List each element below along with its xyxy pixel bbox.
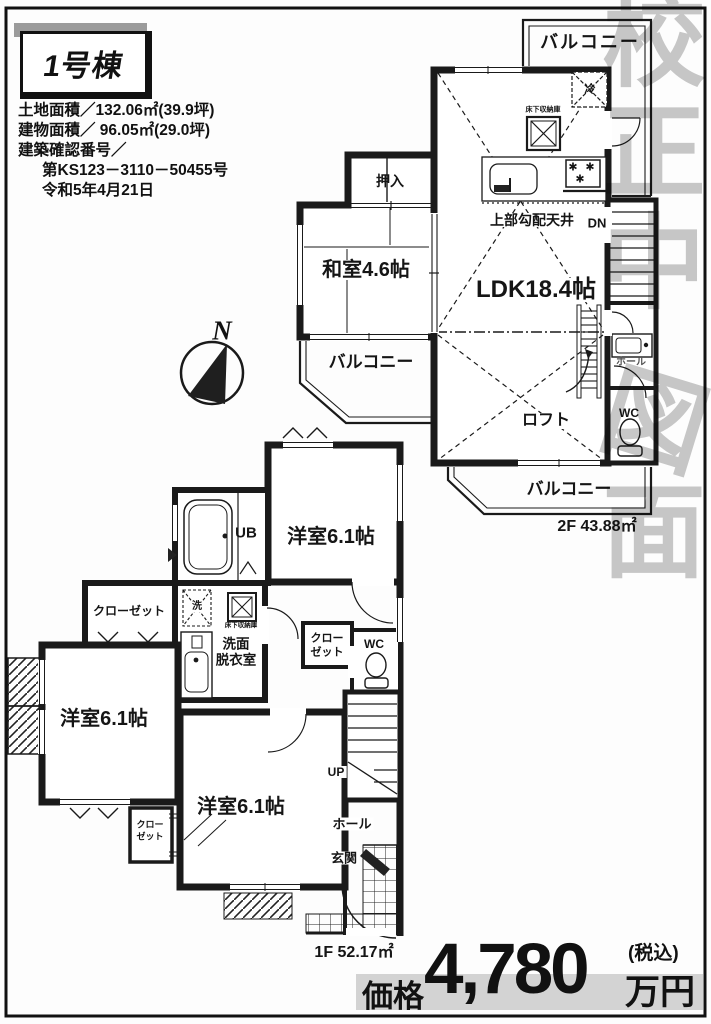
f1-closet-small-label-1: クロー [136, 821, 163, 830]
f2-dn-label: DN [586, 217, 609, 230]
f2-underfloor-label: 床下収納庫 [524, 107, 563, 114]
f2-oshiire-label: 押入 [376, 174, 404, 188]
f2-area-label: 2F 43.88㎡ [557, 519, 636, 535]
f1-washer-icon: 洗 [190, 602, 204, 612]
f1-room-bottom-label: 洋室6.1帖 [197, 797, 285, 817]
confirmation-number-label: 建築確認番号／ [18, 141, 228, 161]
property-info: 土地面積／132.06㎡(39.9坪) 建物面積／ 96.05㎡(29.0坪) … [18, 101, 228, 201]
price-amount: 4,780 [424, 929, 587, 1010]
flyer-sheet: 1号棟 土地面積／132.06㎡(39.9坪) 建物面積／ 96.05㎡(29.… [0, 0, 711, 1024]
price-tax-note: (税込) [628, 938, 679, 965]
f1-underfloor-label: 床下収納庫 [223, 623, 260, 630]
f2-balcony-bottom-label: バルコニー [527, 481, 612, 498]
f2-fridge-icon: 冷 [585, 85, 596, 96]
f1-room-top-label: 洋室6.1帖 [287, 527, 375, 547]
confirmation-number: 第KS123－3110－50455号 [18, 161, 228, 181]
f2-hall-label: ホール [616, 358, 646, 368]
f2-balcony-top-label: バルコニー [540, 33, 640, 51]
f2-washitsu-label: 和室4.6帖 [320, 260, 412, 280]
confirmation-date: 令和5年4月21日 [18, 181, 228, 201]
f2-burner-icon-2: ✱ [585, 163, 594, 174]
building-title-box: 1号棟 [20, 31, 152, 99]
f1-wc-label: WC [364, 638, 384, 650]
compass-icon [181, 342, 243, 404]
f2-wc-label: WC [619, 407, 639, 419]
f2-burner-icon-1: ✱ [568, 163, 577, 174]
price-label: 価格 [362, 971, 424, 1016]
f1-up-label: UP [326, 766, 347, 778]
f1-closet-mid-label-2: ゼット [311, 648, 344, 659]
land-area: 土地面積／132.06㎡(39.9坪) [18, 101, 228, 121]
f1-closet-left-label: クローゼット [93, 605, 165, 617]
f1-room-left-label: 洋室6.1帖 [60, 709, 148, 729]
building-title: 1号棟 [41, 41, 128, 85]
f2-sloped-ceiling-label: 上部勾配天井 [488, 213, 576, 227]
f1-closet-mid-label-1: クロー [311, 634, 344, 645]
f2-burner-icon-3: ✱ [575, 175, 584, 186]
f2-balcony-left-label: バルコニー [329, 354, 414, 371]
f1-washroom-label-2: 脱衣室 [216, 653, 257, 667]
f2-ldk-label: LDK18.4帖 [474, 278, 598, 302]
f1-closet-small-label-2: ゼット [136, 833, 163, 842]
building-area: 建物面積／ 96.05㎡(29.0坪) [18, 121, 228, 141]
f1-hall-label: ホール [330, 818, 373, 831]
f1-area-label: 1F 52.17㎡ [314, 945, 393, 961]
f1-washroom-label-1: 洗面 [223, 637, 250, 651]
f1-entrance-label: 玄関 [329, 852, 359, 865]
price-unit: 万円 [625, 964, 695, 1015]
f2-loft-label: ロフト [520, 413, 572, 429]
f1-ub-label: UB [235, 526, 257, 541]
